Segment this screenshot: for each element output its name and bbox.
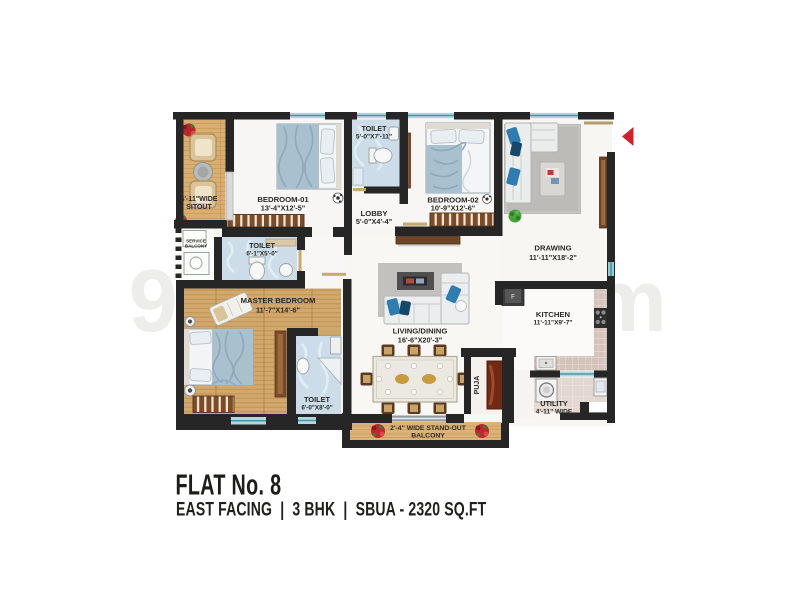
svg-text:16'-6"X20'-3": 16'-6"X20'-3"	[398, 336, 442, 345]
svg-text:BALCONY: BALCONY	[411, 433, 445, 440]
svg-text:4'-11" WIDE: 4'-11" WIDE	[536, 409, 573, 416]
svg-text:TOILET: TOILET	[304, 395, 330, 404]
svg-text:MASTER BEDROOM: MASTER BEDROOM	[241, 296, 316, 305]
svg-text:4'-11"WIDE: 4'-11"WIDE	[181, 196, 218, 203]
svg-text:PUJA: PUJA	[474, 376, 481, 395]
svg-text:5'-0"X7'-11": 5'-0"X7'-11"	[356, 134, 392, 141]
svg-text:TOILET: TOILET	[249, 241, 275, 250]
svg-text:UTILITY: UTILITY	[540, 399, 568, 408]
svg-text:11'-11"X9'-7": 11'-11"X9'-7"	[534, 320, 573, 327]
svg-text:2'-4" WIDE STAND-OUT: 2'-4" WIDE STAND-OUT	[390, 425, 467, 432]
svg-text:SITOUT: SITOUT	[186, 204, 212, 211]
svg-text:5'-0"X4'-4": 5'-0"X4'-4"	[356, 217, 392, 226]
svg-text:BALCONY: BALCONY	[185, 244, 207, 249]
svg-text:11'-11"X18'-2": 11'-11"X18'-2"	[529, 253, 577, 262]
svg-text:TOILET: TOILET	[362, 126, 387, 133]
svg-text:EAST FACING | 3 BHK | SBUA: EAST FACING | 3 BHK | SBUA - 2320 SQ.FT	[176, 498, 487, 520]
svg-text:FLAT No. 8: FLAT No. 8	[176, 470, 282, 502]
svg-text:LIVING/DINING: LIVING/DINING	[393, 327, 448, 336]
svg-text:KITCHEN: KITCHEN	[536, 310, 571, 319]
svg-text:DRAWING: DRAWING	[534, 244, 571, 253]
svg-text:13'-4"X12'-5": 13'-4"X12'-5"	[261, 204, 305, 213]
svg-text:6'-0"X8'-0": 6'-0"X8'-0"	[301, 405, 332, 412]
svg-text:11'-7"X14'-6": 11'-7"X14'-6"	[256, 306, 300, 315]
svg-text:6'-1"X5'-0": 6'-1"X5'-0"	[246, 251, 277, 258]
svg-text:F: F	[511, 294, 515, 301]
svg-text:10'-9"X12'-6": 10'-9"X12'-6"	[431, 204, 475, 213]
